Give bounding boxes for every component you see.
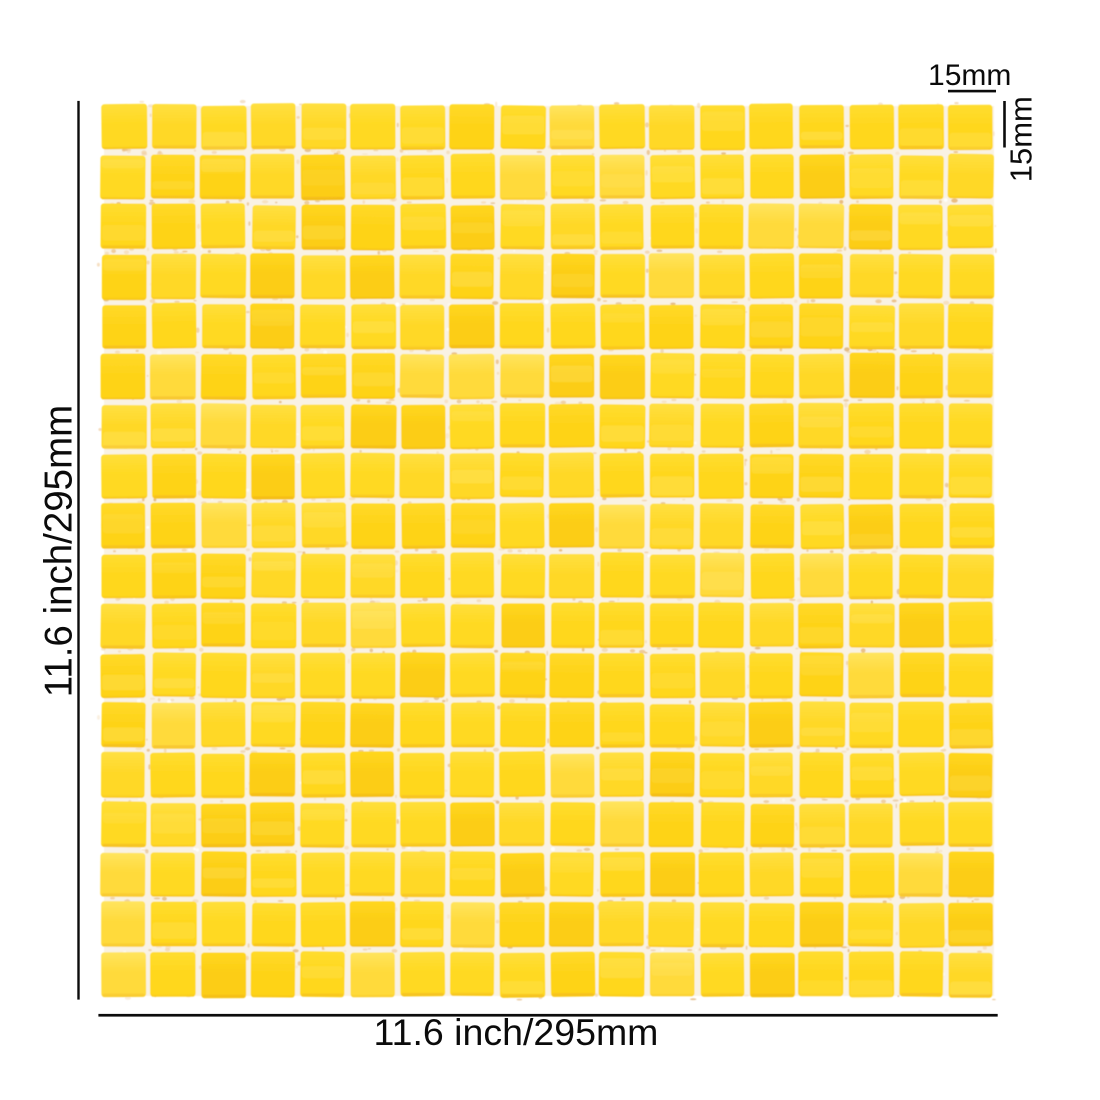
svg-text:11.6 inch/295mm: 11.6 inch/295mm <box>38 405 81 697</box>
svg-text:15mm: 15mm <box>928 59 1011 92</box>
svg-text:15mm: 15mm <box>1004 96 1039 182</box>
svg-text:11.6 inch/295mm: 11.6 inch/295mm <box>374 1011 659 1053</box>
